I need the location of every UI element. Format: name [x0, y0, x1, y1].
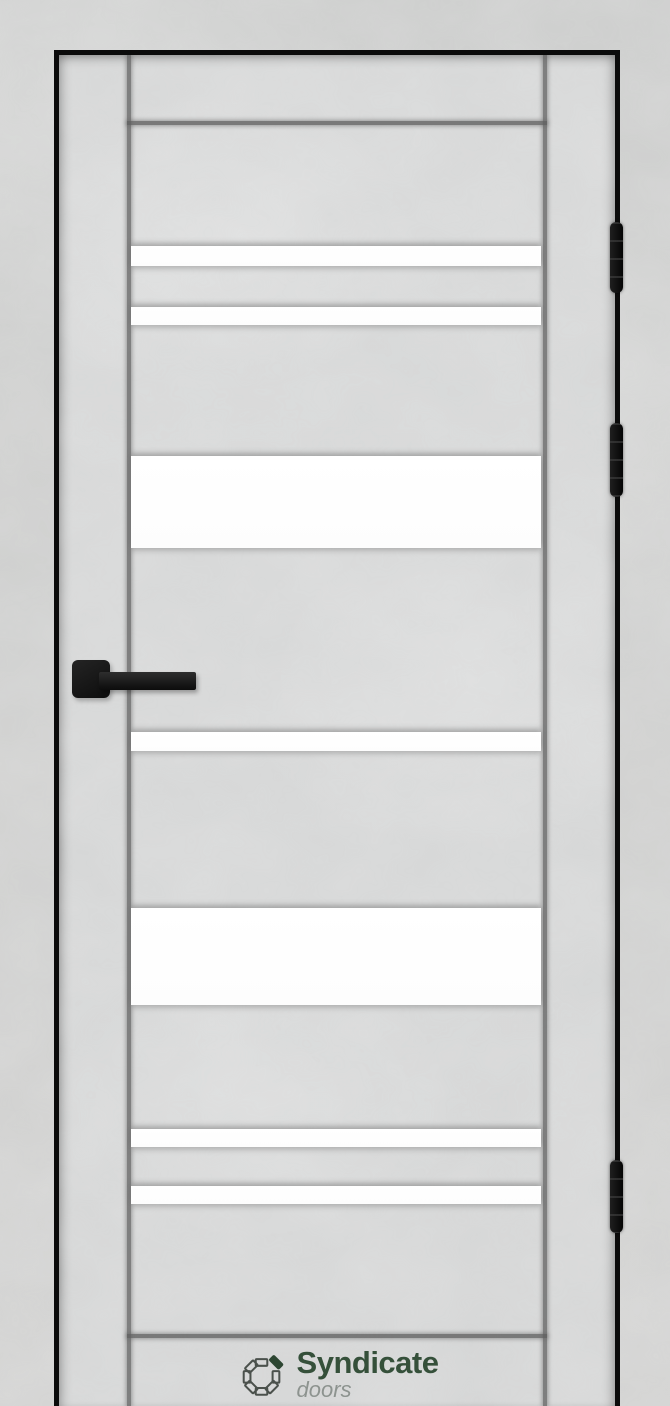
glass-insert-5 [131, 908, 541, 1005]
glass-insert-1 [131, 246, 541, 266]
brand-logo: Syndicate doors [236, 1345, 439, 1403]
glass-insert-6 [131, 1129, 541, 1147]
hinge-middle [610, 423, 623, 497]
panel-groove-bottom [127, 1334, 547, 1338]
panel-groove-right [543, 55, 547, 1406]
brand-name: Syndicate [297, 1347, 439, 1378]
door-leaf: Syndicate doors [59, 55, 615, 1406]
brand-text: Syndicate doors [297, 1347, 439, 1401]
handle-lever [99, 672, 196, 690]
hinge-bottom [610, 1160, 623, 1233]
pinwheel-logo-icon [236, 1345, 288, 1403]
panel-groove-top [127, 121, 547, 125]
brand-subtitle: doors [297, 1379, 439, 1401]
glass-insert-4 [131, 732, 541, 751]
glass-insert-3 [131, 456, 541, 548]
door-black-edge-trim: Syndicate doors [54, 50, 620, 1406]
hinge-top [610, 222, 623, 293]
wall-background: Syndicate doors [0, 0, 670, 1406]
glass-insert-7 [131, 1186, 541, 1204]
glass-insert-2 [131, 307, 541, 325]
door-handle [72, 660, 252, 700]
